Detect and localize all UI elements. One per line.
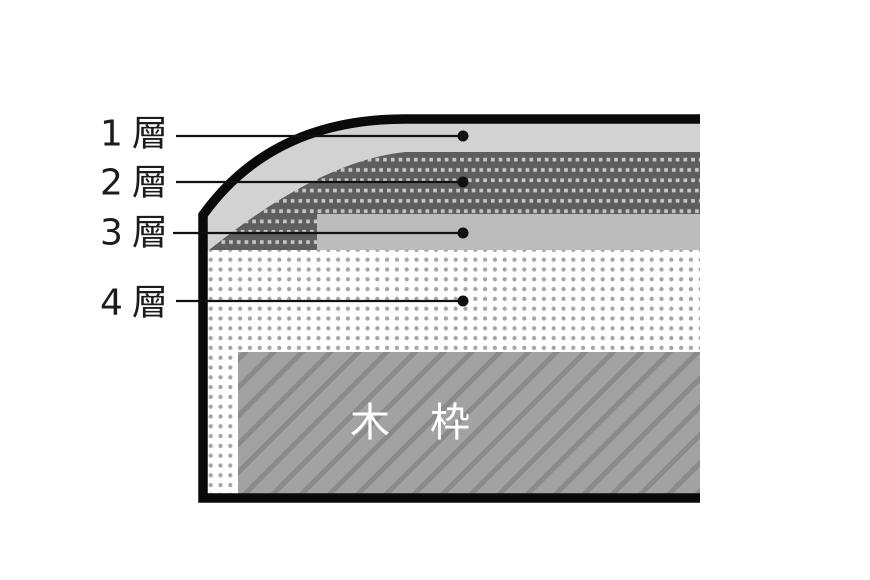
callout-label-layer-4: 4層 bbox=[100, 283, 177, 324]
callout-label-layer-2: 2層 bbox=[100, 163, 177, 204]
wood-frame-label: 木 枠 bbox=[350, 400, 470, 446]
callout-dot-layer-3 bbox=[458, 228, 469, 239]
diagram-canvas: 木 枠 1層 2層 3層 4層 bbox=[0, 0, 870, 580]
callout-dot-layer-2 bbox=[458, 177, 469, 188]
callout-dot-layer-4 bbox=[458, 296, 469, 307]
layer-diagram: 木 枠 1層 2層 3層 4層 bbox=[0, 0, 870, 580]
callout-dot-layer-1 bbox=[458, 131, 469, 142]
callout-label-layer-1: 1層 bbox=[100, 114, 177, 155]
callout-label-layer-3: 3層 bbox=[100, 213, 177, 254]
